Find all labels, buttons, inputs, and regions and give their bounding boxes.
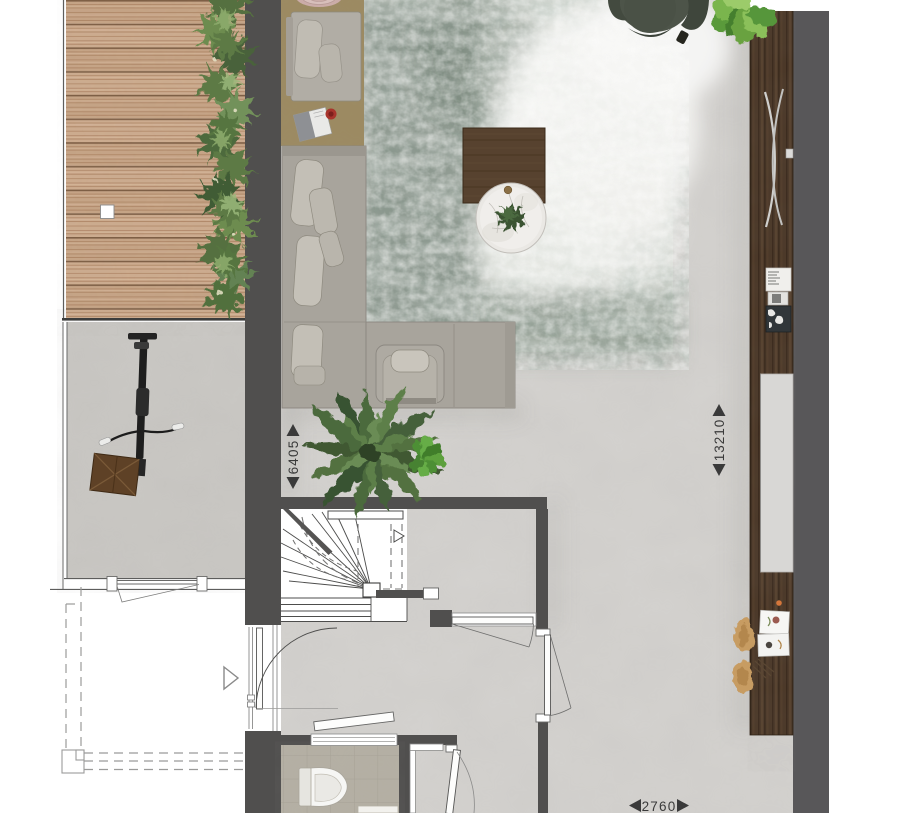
svg-text:13210: 13210 bbox=[712, 419, 727, 462]
svg-text:2760: 2760 bbox=[642, 799, 677, 813]
svg-text:6405: 6405 bbox=[286, 440, 301, 475]
